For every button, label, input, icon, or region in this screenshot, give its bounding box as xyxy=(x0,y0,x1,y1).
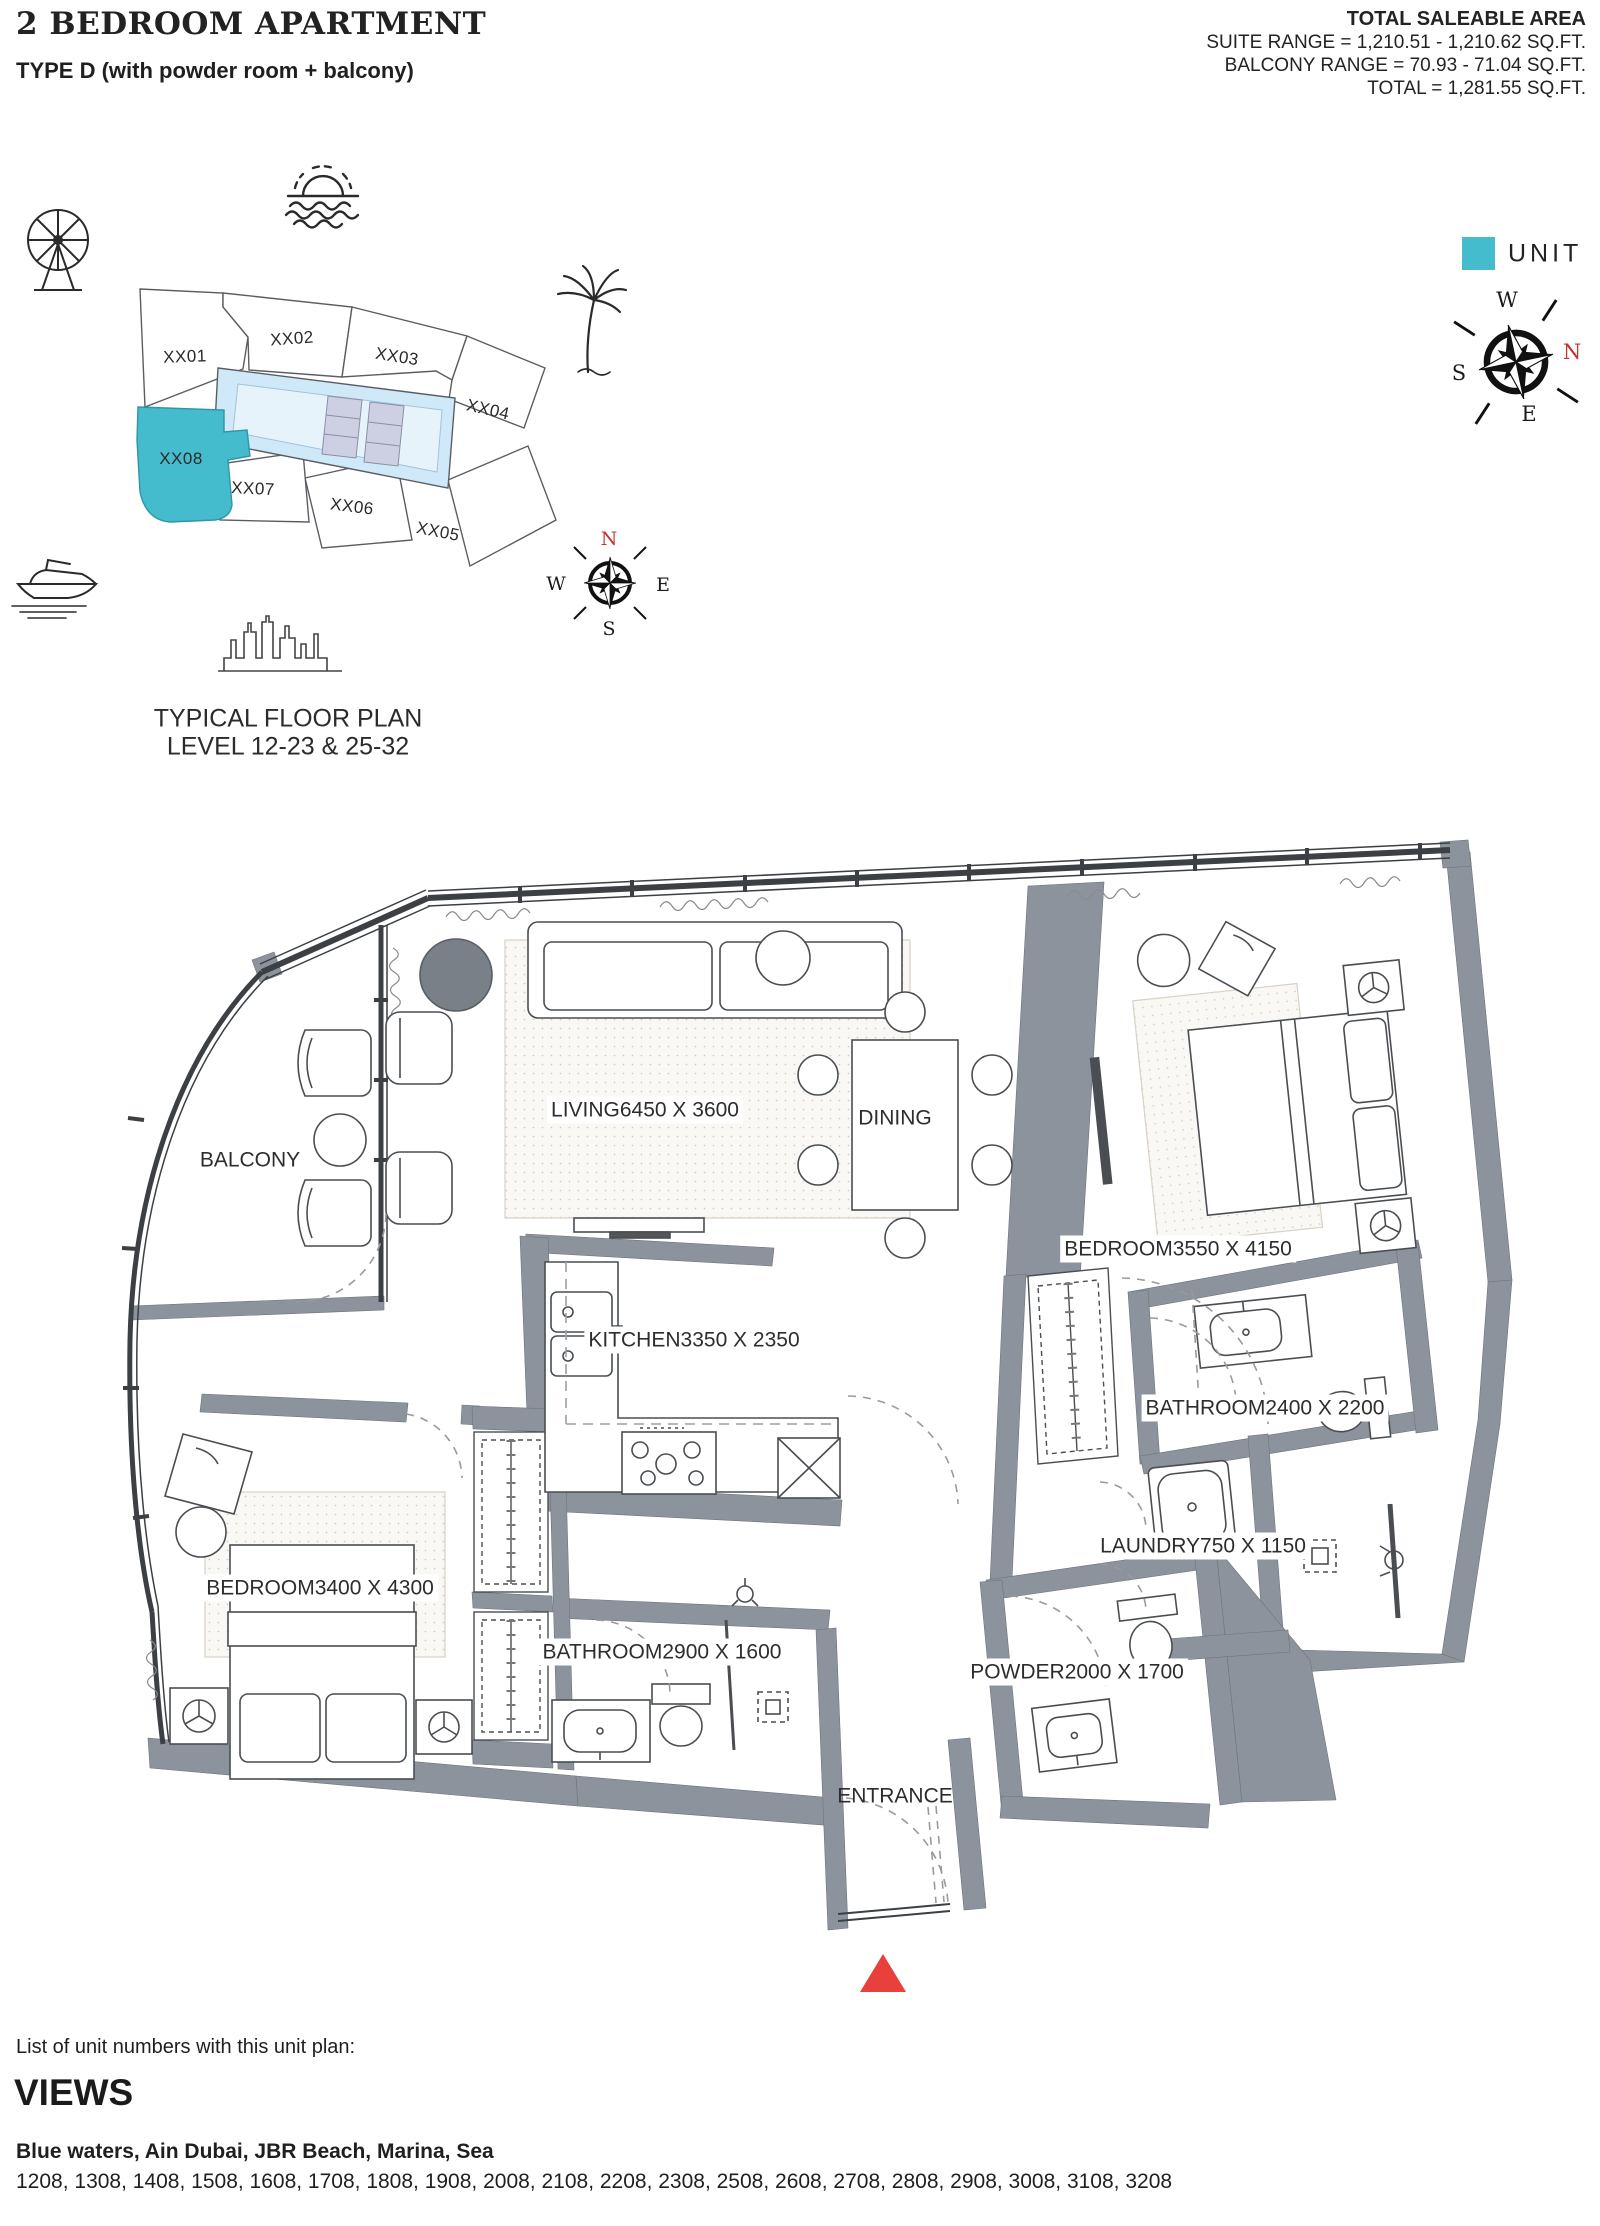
palm-tree-icon xyxy=(558,266,626,375)
keyplan-unit-xx07: XX07 xyxy=(231,478,276,500)
page-title: 2 BEDROOM APARTMENT xyxy=(16,6,486,42)
keyplan-caption-line1: TYPICAL FLOOR PLAN xyxy=(154,705,423,734)
views-title: VIEWS xyxy=(14,2072,133,2114)
ferris-wheel-icon xyxy=(28,210,88,290)
compass-small xyxy=(574,547,646,619)
room-label-powder: POWDER2000 X 1700 xyxy=(966,1659,1188,1686)
page-subtitle: TYPE D (with powder room + balcony) xyxy=(16,58,414,84)
room-label-laundry: LAUNDRY750 X 1150 xyxy=(1096,1533,1310,1560)
unit-numbers: 1208, 1308, 1408, 1508, 1608, 1708, 1808… xyxy=(16,2170,1172,2194)
compass-large-w: W xyxy=(1496,288,1518,312)
room-label-entrance: ENTRANCE xyxy=(833,1783,957,1810)
unit-legend-label: UNIT xyxy=(1508,240,1582,269)
key-plan xyxy=(137,289,556,566)
saleable-area-block: TOTAL SALEABLE AREA SUITE RANGE = 1,210.… xyxy=(1206,8,1586,100)
shower-room-fixtures xyxy=(1304,1504,1403,1618)
room-label-bedroom-left: BEDROOM3400 X 4300 xyxy=(202,1575,438,1602)
balcony-furniture xyxy=(298,1030,371,1246)
compass-large-s: S xyxy=(1452,361,1466,385)
compass-large xyxy=(1454,300,1578,424)
entrance-marker xyxy=(860,1954,906,1992)
unit-legend-swatch xyxy=(1462,237,1495,270)
views-value: Blue waters, Ain Dubai, JBR Beach, Marin… xyxy=(16,2140,494,2164)
compass-large-n: N xyxy=(1563,340,1581,364)
compass-small-n: N xyxy=(601,528,618,550)
room-label-bathroom-right: BATHROOM2400 X 2200 xyxy=(1142,1395,1389,1422)
keyplan-unit-xx01: XX01 xyxy=(163,346,207,368)
room-label-living: LIVING6450 X 3600 xyxy=(547,1097,743,1124)
compass-small-s: S xyxy=(602,618,615,640)
compass-small-e: E xyxy=(656,574,670,596)
floor-plan-drawing xyxy=(0,0,1600,2226)
keyplan-caption-line2: LEVEL 12-23 & 25-32 xyxy=(167,733,409,762)
compass-small-w: W xyxy=(546,573,566,595)
kitchen-furniture xyxy=(545,1262,840,1498)
room-label-balcony: BALCONY xyxy=(196,1147,304,1174)
skyline-icon xyxy=(218,616,342,671)
room-label-kitchen: KITCHEN3350 X 2350 xyxy=(584,1327,803,1354)
room-label-bedroom-right: BEDROOM3550 X 4150 xyxy=(1060,1236,1296,1263)
sunset-icon xyxy=(286,166,358,227)
compass-large-e: E xyxy=(1521,402,1536,426)
area-title: TOTAL SALEABLE AREA xyxy=(1206,8,1586,31)
balcony-range: BALCONY RANGE = 70.93 - 71.04 SQ.FT. xyxy=(1206,54,1586,77)
unit-list-label: List of unit numbers with this unit plan… xyxy=(16,2036,355,2059)
total-area: TOTAL = 1,281.55 SQ.FT. xyxy=(1206,77,1586,100)
room-label-bathroom-left: BATHROOM2900 X 1600 xyxy=(539,1639,786,1666)
keyplan-unit-xx08: XX08 xyxy=(159,449,203,469)
floorplan-page: { "header": { "title": "2 BEDROOM APARTM… xyxy=(0,0,1600,2226)
yacht-icon xyxy=(12,560,96,618)
room-label-dining: DINING xyxy=(854,1105,936,1132)
keyplan-unit-xx02: XX02 xyxy=(270,328,315,351)
suite-range: SUITE RANGE = 1,210.51 - 1,210.62 SQ.FT. xyxy=(1206,31,1586,54)
